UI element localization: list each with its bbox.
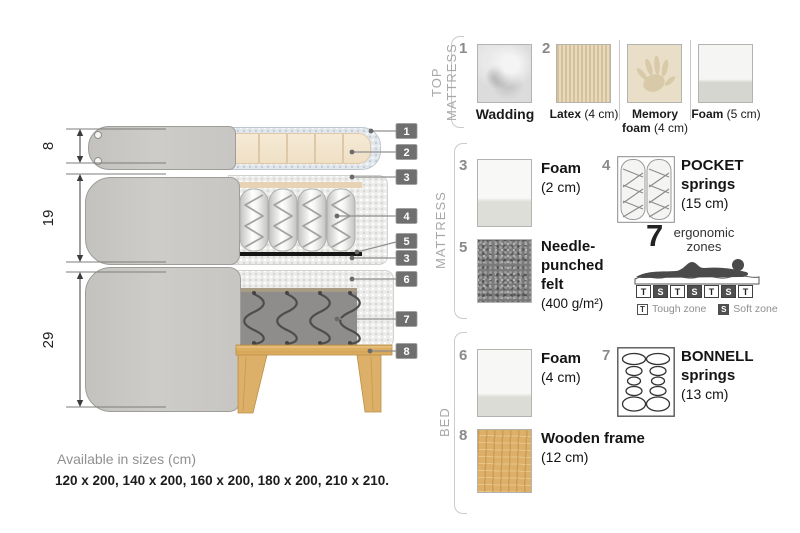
top-mattress-latex-blocks <box>231 133 371 164</box>
zone-boxes: T S T S T S T <box>636 285 753 298</box>
legend-num-wood: 8 <box>459 427 467 444</box>
callout-number: 3 <box>403 253 409 265</box>
callout-number: 2 <box>403 147 409 159</box>
legend-num-felt: 5 <box>459 239 467 256</box>
callout-number: 8 <box>403 346 409 358</box>
wadding-label: Wadding <box>463 107 547 121</box>
soft-zone-key-icon: S <box>718 304 729 315</box>
latex-swatch <box>556 44 611 103</box>
latex-block <box>344 134 370 163</box>
wadding-swatch <box>477 44 532 103</box>
dim-mattress: 19 <box>40 210 57 227</box>
bed-bonnell-core <box>228 288 357 346</box>
legend-num-foam2: 3 <box>459 157 467 174</box>
felt-label: Needle-punched felt (400 g/m²) <box>541 237 623 313</box>
legend-num-latex: 2 <box>542 40 550 57</box>
latex-label: Latex (4 cm) <box>545 107 623 121</box>
legend-num-bonnell: 7 <box>602 347 610 364</box>
mattress-button-icon <box>94 157 102 165</box>
callout-number: 5 <box>403 236 409 248</box>
tough-zone-key-icon: T <box>637 304 648 315</box>
foam5-label: Foam (5 cm) <box>687 107 765 121</box>
zone-key: T Tough zone S Soft zone <box>637 303 778 315</box>
bed-front-panel <box>85 267 241 412</box>
zone-box-tough: T <box>704 285 719 298</box>
zone-box-tough: T <box>636 285 651 298</box>
section-label-mattress: MATTRESS <box>433 143 448 317</box>
hand-imprint-icon <box>628 45 681 102</box>
legend-num-wadding: 1 <box>459 40 467 57</box>
ergonomic-zones-count: 7 <box>646 218 663 254</box>
bonnell-springs-label: BONNELL springs (13 cm) <box>681 347 754 404</box>
foam2-swatch <box>477 159 532 227</box>
bed-construction-infographic: { "diagram": { "dims": { "top_mattress":… <box>0 0 800 533</box>
callout-number: 4 <box>403 211 410 223</box>
callout-number: 7 <box>403 314 409 326</box>
tough-zone-label: Tough zone <box>652 303 706 315</box>
bed-bonnell-top-strip <box>228 288 357 292</box>
zone-box-tough: T <box>738 285 753 298</box>
legend-num-pocket: 4 <box>602 157 610 174</box>
zone-box-soft: S <box>687 285 702 298</box>
latex-block <box>316 134 344 163</box>
callout-boxes: 1 2 3 4 5 3 6 7 8 <box>396 124 417 359</box>
section-label-top-mattress: TOP MATTRESS <box>429 35 459 129</box>
top-mattress-front-panel <box>88 126 236 170</box>
foam4-label: Foam (4 cm) <box>541 349 581 387</box>
available-sizes-list: 120 x 200, 140 x 200, 160 x 200, 180 x 2… <box>55 473 389 488</box>
mattress-front-panel <box>85 177 240 265</box>
zone-box-tough: T <box>670 285 685 298</box>
latex-block <box>288 134 316 163</box>
legend-num-foam4: 6 <box>459 347 467 364</box>
available-sizes-title: Available in sizes (cm) <box>57 451 196 467</box>
callout-number: 1 <box>403 126 409 138</box>
wooden-frame-illustration <box>236 345 392 413</box>
dimension-labels: 8 19 29 <box>40 142 57 349</box>
pocket-springs-label: POCKET springs (15 cm) <box>681 156 744 213</box>
mattress-top-foam-strip <box>228 182 362 188</box>
dim-bed: 29 <box>40 332 57 349</box>
dim-top-mattress: 8 <box>40 142 57 150</box>
bonnell-springs-icon <box>617 347 675 422</box>
wood-label: Wooden frame (12 cm) <box>541 429 645 467</box>
wood-swatch <box>477 429 532 493</box>
felt-swatch <box>477 239 532 303</box>
ergonomic-zones-label: ergonomic zones <box>670 226 738 254</box>
mattress-felt-layer <box>228 252 362 256</box>
mattress-button-icon <box>94 131 102 139</box>
zone-box-soft: S <box>653 285 668 298</box>
memory-foam-swatch <box>627 44 682 103</box>
soft-zone-label: Soft zone <box>733 303 777 315</box>
zone-box-soft: S <box>721 285 736 298</box>
latex-block <box>260 134 288 163</box>
foam2-label: Foam (2 cm) <box>541 159 581 197</box>
section-label-bed: BED <box>437 332 452 512</box>
callout-number: 3 <box>403 172 409 184</box>
foam5-swatch <box>698 44 753 103</box>
callout-number: 6 <box>403 274 409 286</box>
memory-foam-label: Memory foam (4 cm) <box>614 107 696 135</box>
foam4-swatch <box>477 349 532 417</box>
latex-block <box>232 134 260 163</box>
